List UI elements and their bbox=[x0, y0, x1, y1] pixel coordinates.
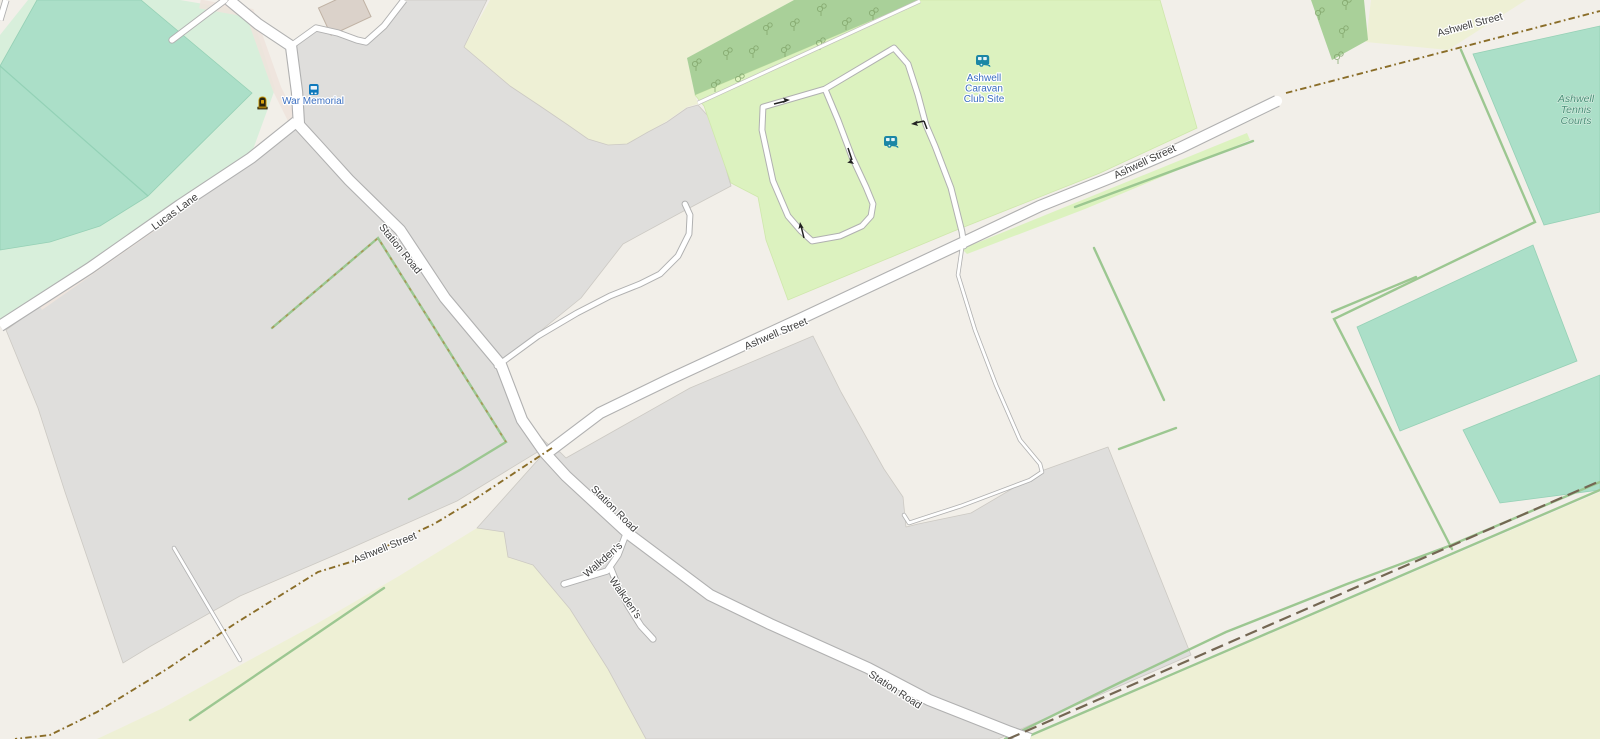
svg-text:War Memorial: War Memorial bbox=[282, 96, 344, 107]
svg-text:Ashwell: Ashwell bbox=[967, 73, 1001, 84]
svg-text:Club Site: Club Site bbox=[964, 94, 1005, 105]
svg-text:Caravan: Caravan bbox=[965, 84, 1003, 95]
svg-text:Courts: Courts bbox=[1561, 115, 1593, 127]
